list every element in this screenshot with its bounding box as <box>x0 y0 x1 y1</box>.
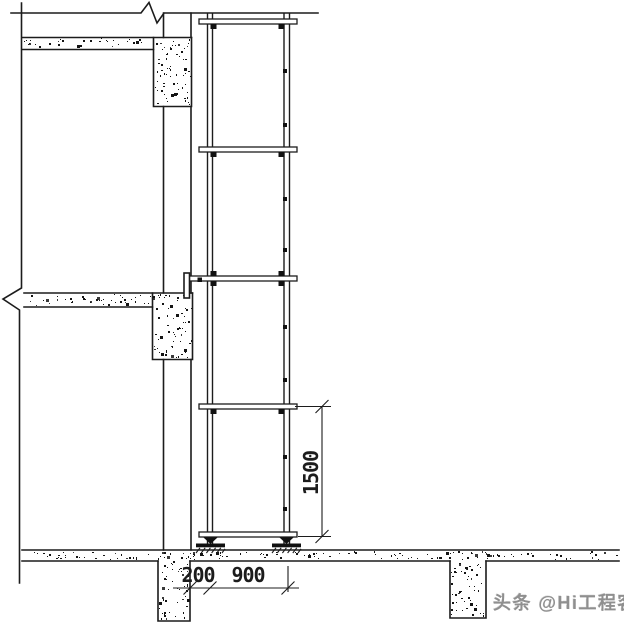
pin-icon <box>283 325 287 329</box>
pin-icon <box>283 507 287 511</box>
pin-icon <box>283 378 287 382</box>
pin-icon <box>283 197 287 201</box>
ledger-row-5-base <box>199 532 297 537</box>
ledger-row-1 <box>199 19 297 24</box>
middle-edge-beam-concrete <box>153 294 192 359</box>
scaffold-section-drawing: 1500 200 900 头条 @Hi工程客 <box>0 0 624 624</box>
top-break-line <box>11 3 318 24</box>
left-cut-line <box>3 3 22 583</box>
clamp-icon <box>211 409 217 414</box>
tie-rod-coupler-icon <box>198 278 203 283</box>
ground-slab-concrete <box>23 551 618 560</box>
right-footing-concrete <box>450 561 486 617</box>
inner-standard-tube <box>208 13 213 544</box>
clamp-icon <box>279 271 285 276</box>
base-plate-icon <box>196 544 225 548</box>
upper-edge-beam-concrete <box>154 38 191 106</box>
pin-icon <box>283 248 287 252</box>
clamp-icon <box>211 152 217 157</box>
clamp-icon <box>211 24 217 29</box>
drawing-linework <box>0 0 624 624</box>
dim-label-200: 200 <box>176 565 220 585</box>
clamp-icon <box>279 152 285 157</box>
ledger-row-3-wall-tie <box>185 276 298 281</box>
pin-icon <box>283 455 287 459</box>
clamp-icon <box>211 271 217 276</box>
upper-floor-slab-concrete <box>22 38 153 48</box>
ledger-row-4 <box>199 404 297 409</box>
ledger-row-2 <box>199 147 297 152</box>
dim-label-900: 900 <box>226 565 270 585</box>
pin-icon <box>283 123 287 127</box>
base-jack-icon <box>204 538 218 545</box>
base-plate-icon <box>272 544 301 548</box>
middle-floor-slab-concrete <box>25 294 152 306</box>
clamp-icon <box>279 24 285 29</box>
dim-label-1500: 1500 <box>301 443 321 503</box>
clamp-icon <box>211 281 217 286</box>
base-jack-icon <box>280 538 294 545</box>
clamp-icon <box>279 409 285 414</box>
pin-icon <box>283 69 287 73</box>
watermark-text: 头条 @Hi工程客 <box>493 589 624 615</box>
clamp-icon <box>279 281 285 286</box>
outer-standard-tube <box>284 13 290 544</box>
